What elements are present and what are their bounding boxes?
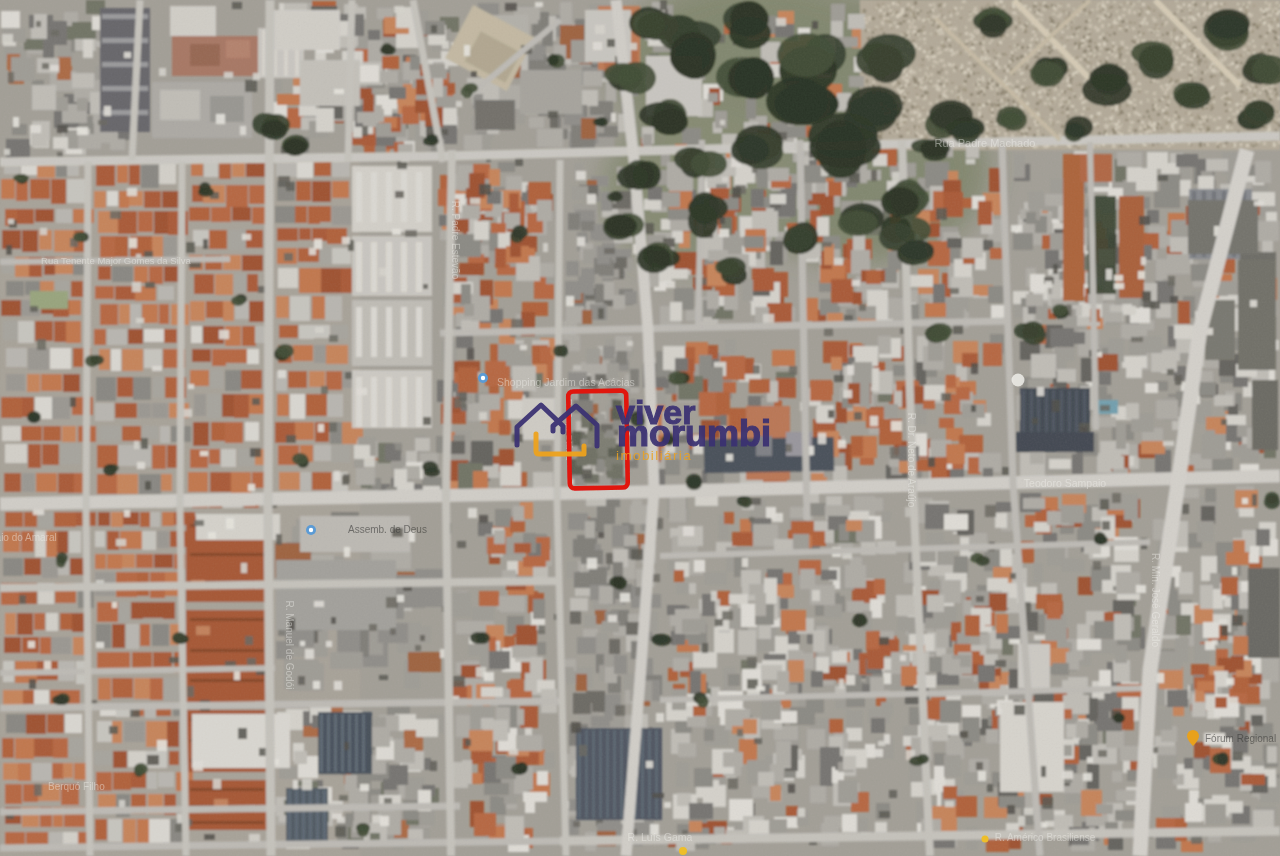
- svg-text:R. Dr. Neto de Araújo: R. Dr. Neto de Araújo: [906, 413, 917, 508]
- svg-text:imobiliária: imobiliária: [616, 448, 692, 463]
- svg-text:Fórum Regional: Fórum Regional: [1205, 733, 1276, 744]
- svg-text:Rua Tenente Major Gomes da Sil: Rua Tenente Major Gomes da Silva: [41, 255, 192, 266]
- svg-text:R. Min. José Geraldo: R. Min. José Geraldo: [1150, 553, 1161, 647]
- svg-text:Berquó Filho: Berquó Filho: [48, 781, 105, 792]
- svg-text:Teodoro Sampaio: Teodoro Sampaio: [1024, 477, 1106, 489]
- svg-text:R. Padre Estevão: R. Padre Estevão: [450, 201, 461, 280]
- svg-text:R. Manuel de Godói: R. Manuel de Godói: [284, 601, 295, 690]
- svg-text:Cmte. Sampaio do Amaral: Cmte. Sampaio do Amaral: [0, 532, 57, 543]
- svg-text:R. Américo Brasiliense: R. Américo Brasiliense: [995, 832, 1096, 843]
- svg-text:Assemb. de Deus: Assemb. de Deus: [348, 524, 427, 535]
- svg-text:R. Luís Gama: R. Luís Gama: [628, 831, 693, 843]
- svg-text:Rua Padre Machado: Rua Padre Machado: [935, 137, 1036, 149]
- svg-text:Shopping Jardim das Acácias: Shopping Jardim das Acácias: [497, 376, 635, 388]
